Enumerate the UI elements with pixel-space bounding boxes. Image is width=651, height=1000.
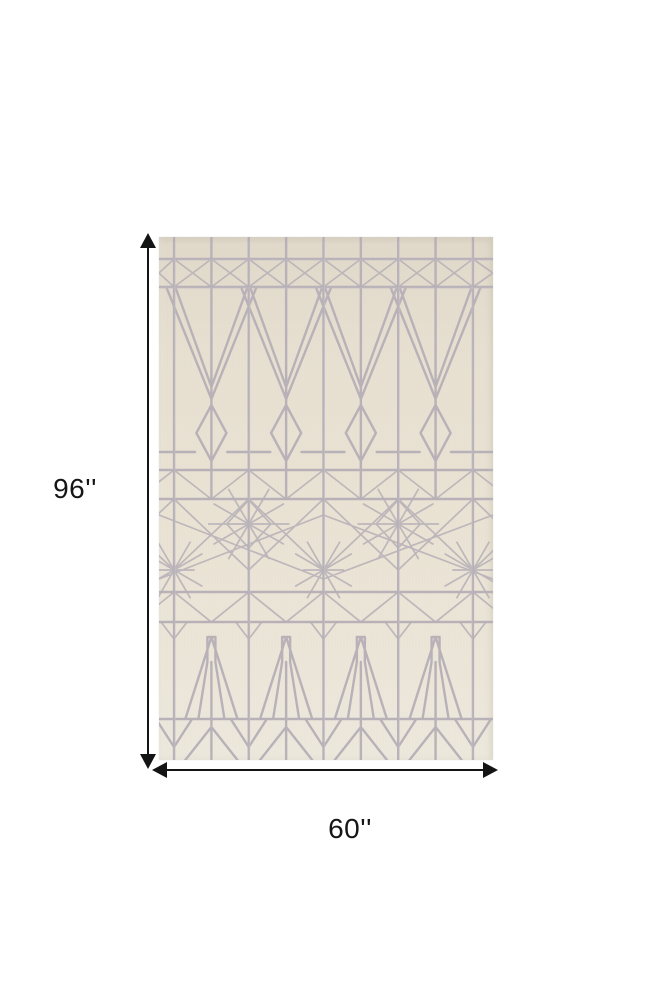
width-dimension-bar: [163, 769, 487, 772]
width-dimension-label: 60'': [303, 815, 397, 843]
rug-pattern-svg: [159, 237, 493, 760]
width-dimension-line: [152, 761, 498, 779]
rug-image: [159, 237, 493, 760]
arrow-up-icon: [140, 233, 156, 248]
arrow-right-icon: [483, 762, 498, 778]
product-dimension-diagram: 96'' 60'': [0, 0, 651, 1000]
height-dimension-bar: [147, 244, 150, 758]
height-dimension-line: [139, 233, 157, 769]
height-dimension-label: 96'': [28, 475, 122, 503]
arrow-left-icon: [152, 762, 167, 778]
